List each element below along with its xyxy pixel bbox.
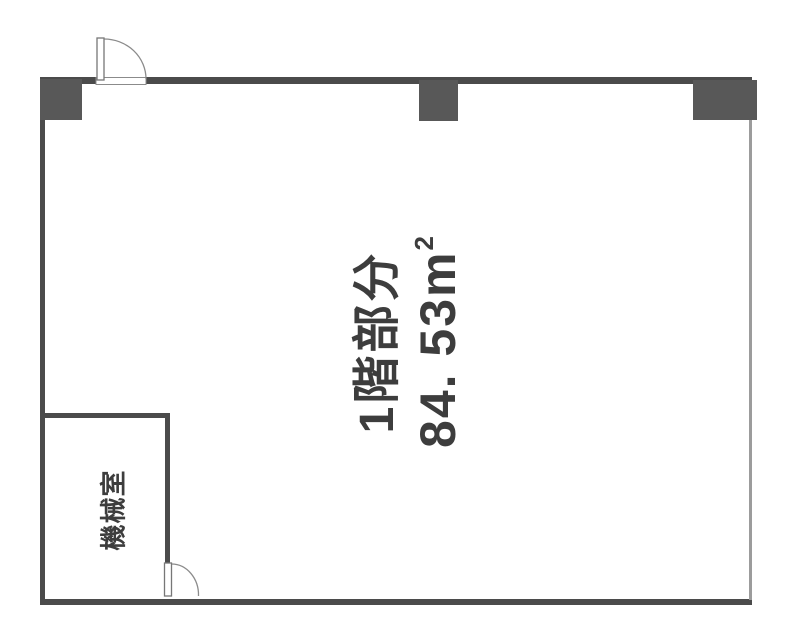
machine-room-wall-right bbox=[165, 413, 170, 563]
machine-room-label: 機械室 bbox=[94, 469, 131, 550]
main-room-label: 1階部分 84. 53m2 bbox=[347, 236, 469, 448]
pillar-top-center bbox=[419, 80, 458, 121]
wall-right bbox=[749, 80, 752, 600]
wall-left bbox=[40, 77, 45, 605]
entrance-door-icon bbox=[94, 36, 152, 86]
machine-room-door-leaf bbox=[165, 563, 172, 596]
entrance-door-leaf bbox=[97, 38, 104, 80]
machine-room-door-icon bbox=[160, 558, 202, 600]
machine-room-door-swing-arc bbox=[172, 564, 199, 596]
main-room-area: 84. 53m2 bbox=[408, 236, 469, 448]
pillar-top-left bbox=[40, 79, 82, 120]
pillar-top-right bbox=[693, 80, 757, 120]
main-room-area-exponent: 2 bbox=[409, 236, 439, 250]
entrance-door-swing-arc bbox=[104, 39, 146, 79]
floor-plan: 1階部分 84. 53m2 機械室 bbox=[0, 0, 787, 637]
main-room-name: 1階部分 bbox=[347, 236, 408, 448]
wall-bottom bbox=[40, 599, 752, 605]
main-room-area-unit: m bbox=[410, 250, 466, 296]
machine-room-wall-top bbox=[40, 413, 170, 418]
main-room-area-value: 84. 53 bbox=[410, 297, 466, 448]
